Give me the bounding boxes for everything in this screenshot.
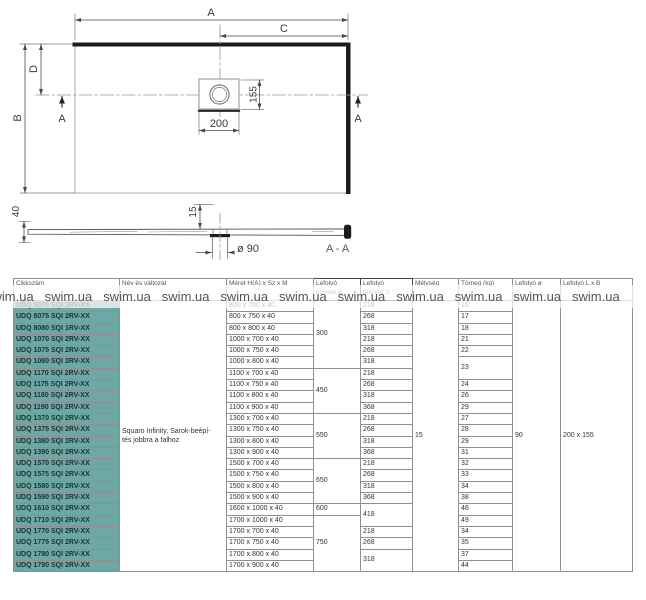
spec-table: Cikkszám Név és változat Méret H(A) x Sz…: [13, 278, 633, 572]
drain-d-cell: 218: [361, 526, 413, 537]
size-cell: 1600 x 1000 x 40: [227, 504, 314, 515]
dim-a-label: A: [207, 7, 215, 19]
header-nev-valtozat: Név és változat: [120, 279, 227, 301]
dim-d-label: D: [28, 65, 40, 73]
drain-c-cell: 300: [314, 301, 361, 369]
drain-lxb-cell: 200 x 155: [561, 301, 633, 572]
size-cell: 1700 x 800 x 40: [227, 549, 314, 560]
header-row: Cikkszám Név és változat Méret H(A) x Sz…: [14, 279, 633, 301]
weight-cell: 33: [459, 470, 513, 481]
size-cell: 1700 x 1000 x 40: [227, 515, 314, 526]
weight-cell: 22: [459, 346, 513, 357]
size-cell: 1300 x 700 x 40: [227, 413, 314, 424]
weight-cell: 29: [459, 402, 513, 413]
sku-cell: UDQ 1070 SQI 2RV-XX: [14, 334, 120, 345]
sku-cell: UDQ 1775 SQI 2RV-XX: [14, 538, 120, 549]
size-cell: 1000 x 800 x 40: [227, 357, 314, 368]
dim-b-label: B: [12, 114, 24, 121]
drain-d-cell: 318: [361, 549, 413, 572]
drain-d-cell: 318: [361, 481, 413, 492]
drain-d-cell: 318: [361, 436, 413, 447]
wall-flange: [344, 225, 351, 239]
weight-cell: 26: [459, 391, 513, 402]
weight-cell: 35: [459, 538, 513, 549]
drain-d-cell: 268: [361, 380, 413, 391]
sku-cell: UDQ 8075 SQI 2RV-XX: [14, 312, 120, 323]
size-cell: 1100 x 700 x 40: [227, 368, 314, 379]
header-lefolyo-c: Lefolyó mérete C: [314, 279, 361, 301]
size-cell: 1000 x 750 x 40: [227, 346, 314, 357]
drain-d-cell: 268: [361, 425, 413, 436]
sku-cell: UDQ 1190 SQI 2RV-XX: [14, 402, 120, 413]
sku-cell: UDQ 1790 SQI 2RV-XX: [14, 560, 120, 571]
weight-cell: 27: [459, 413, 513, 424]
sku-cell: UDQ 8080 SQI 1RV-XX: [14, 323, 120, 334]
sku-cell: UDQ 1380 SQI 2RV-XX: [14, 436, 120, 447]
weight-cell: 37: [459, 549, 513, 560]
weight-cell: 21: [459, 334, 513, 345]
drain-d-cell: 218: [361, 368, 413, 379]
drain-c-cell: 750: [314, 515, 361, 571]
dim-c-label: C: [280, 23, 288, 35]
weight-cell: 31: [459, 447, 513, 458]
sku-cell: UDQ 1590 SQI 2RV-XX: [14, 493, 120, 504]
table-row: UDQ 8070 SQI 2RV-XXSquaro Infinity, Saro…: [14, 301, 633, 312]
datasheet-page: A C B D 155 200: [0, 0, 646, 600]
size-cell: 1500 x 800 x 40: [227, 481, 314, 492]
dim-40-label: 40: [11, 206, 22, 218]
drain-c-cell: 550: [314, 413, 361, 458]
weight-cell: 34: [459, 526, 513, 537]
size-cell: 1100 x 900 x 40: [227, 402, 314, 413]
size-cell: 1500 x 900 x 40: [227, 493, 314, 504]
tray-top-edge: [73, 43, 351, 47]
drain-d-cell: 318: [361, 357, 413, 368]
depth-cell: 15: [413, 301, 459, 572]
size-cell: 1700 x 750 x 40: [227, 538, 314, 549]
sku-cell: UDQ 1390 SQI 2RV-XX: [14, 447, 120, 458]
drain-c-cell: 650: [314, 459, 361, 504]
sku-cell: UDQ 1175 SQI 2RV-XX: [14, 380, 120, 391]
size-cell: 1300 x 900 x 40: [227, 447, 314, 458]
sku-cell: UDQ 1570 SQI 2RV-XX: [14, 459, 120, 470]
drain-c-cell: 600: [314, 504, 361, 515]
size-cell: 1700 x 700 x 40: [227, 526, 314, 537]
weight-cell: 23: [459, 357, 513, 380]
cut-label-right: A: [354, 113, 362, 125]
cut-label-left: A: [58, 113, 66, 125]
weight-cell: 49: [459, 515, 513, 526]
drain-d-cell: 368: [361, 447, 413, 458]
drain-d-cell: 268: [361, 346, 413, 357]
technical-drawing: A C B D 155 200: [0, 0, 646, 278]
size-cell: 1700 x 900 x 40: [227, 560, 314, 571]
sku-cell: UDQ 8070 SQI 2RV-XX: [14, 301, 120, 312]
dim-155-label: 155: [249, 86, 260, 103]
size-cell: 1500 x 750 x 40: [227, 470, 314, 481]
spec-table-body: UDQ 8070 SQI 2RV-XXSquaro Infinity, Saro…: [14, 301, 633, 572]
weight-cell: 17: [459, 312, 513, 323]
top-view: A C B D 155 200: [12, 7, 368, 194]
header-lefolyo-d: Lefolyó mérete D: [361, 279, 413, 301]
drain-d-cell: 418: [361, 504, 413, 527]
sku-cell: UDQ 1180 SQI 2RV-XX: [14, 391, 120, 402]
section-view: 40 15 ø 90 A - A: [11, 205, 351, 262]
drain-d-cell: 268: [361, 312, 413, 323]
header-cikkszam: Cikkszám: [14, 279, 120, 301]
drain-d-cell: 268: [361, 538, 413, 549]
size-cell: 1000 x 700 x 40: [227, 334, 314, 345]
drain-d-cell: 218: [361, 459, 413, 470]
tray-right-edge: [346, 43, 351, 195]
size-cell: 1100 x 750 x 40: [227, 380, 314, 391]
size-cell: 800 x 750 x 40: [227, 312, 314, 323]
weight-cell: 34: [459, 481, 513, 492]
sku-cell: UDQ 1375 SQI 2RV-XX: [14, 425, 120, 436]
sku-cell: UDQ 1370 SQI 2RV-XX: [14, 413, 120, 424]
size-cell: 1300 x 800 x 40: [227, 436, 314, 447]
name-variant-cell: Squaro Infinity, Sarok-beépí- tés jobbra…: [120, 301, 227, 572]
dim-15-label: 15: [188, 206, 199, 218]
weight-cell: 38: [459, 493, 513, 504]
drain-d-cell: 218: [361, 413, 413, 424]
size-cell: 800 x 800 x 40: [227, 323, 314, 334]
size-cell: 1300 x 750 x 40: [227, 425, 314, 436]
weight-cell: 29: [459, 436, 513, 447]
size-cell: 800 x 700 x 40: [227, 301, 314, 312]
drain-d-cell: 218: [361, 301, 413, 312]
drain-c-cell: 450: [314, 368, 361, 413]
weight-cell: 32: [459, 459, 513, 470]
weight-cell: 46: [459, 504, 513, 515]
weight-cell: 28: [459, 425, 513, 436]
sku-cell: UDQ 1710 SQI 2RV-XX: [14, 515, 120, 526]
drain-d-cell: 218: [361, 334, 413, 345]
size-cell: 1500 x 700 x 40: [227, 459, 314, 470]
size-cell: 1100 x 800 x 40: [227, 391, 314, 402]
sku-cell: UDQ 1080 SQI 2RV-XX: [14, 357, 120, 368]
drain-d-cell: 368: [361, 402, 413, 413]
weight-cell: 24: [459, 380, 513, 391]
sku-cell: UDQ 1170 SQI 2RV-XX: [14, 368, 120, 379]
sku-cell: UDQ 1770 SQI 2RV-XX: [14, 526, 120, 537]
drain-d-cell: 368: [361, 493, 413, 504]
weight-cell: 18: [459, 323, 513, 334]
drain-d-cell: 318: [361, 391, 413, 402]
header-lefolyo-lxb: Lefolyó L x B: [561, 279, 633, 301]
drain-dia-cell: 90: [513, 301, 561, 572]
header-melyseg: Mélység: [413, 279, 459, 301]
weight-cell: 44: [459, 560, 513, 571]
sku-cell: UDQ 1075 SQI 2RV-XX: [14, 346, 120, 357]
header-meret: Méret H(A) x Sz x M: [227, 279, 314, 301]
drain-d-cell: 268: [361, 470, 413, 481]
sku-cell: UDQ 1580 SQI 2RV-XX: [14, 481, 120, 492]
drain-dia-label: ø 90: [237, 243, 259, 255]
dim-200-label: 200: [210, 118, 228, 130]
sku-cell: UDQ 1610 SQI 2RV-XX: [14, 504, 120, 515]
header-tomeg: Tömeg (kg): [459, 279, 513, 301]
sku-cell: UDQ 1780 SQI 2RV-XX: [14, 549, 120, 560]
drain-d-cell: 318: [361, 323, 413, 334]
weight-cell: 16: [459, 301, 513, 312]
section-label: A - A: [326, 243, 350, 255]
header-lefolyo-atmero: Lefolyó ø: [513, 279, 561, 301]
sku-cell: UDQ 1575 SQI 2RV-XX: [14, 470, 120, 481]
